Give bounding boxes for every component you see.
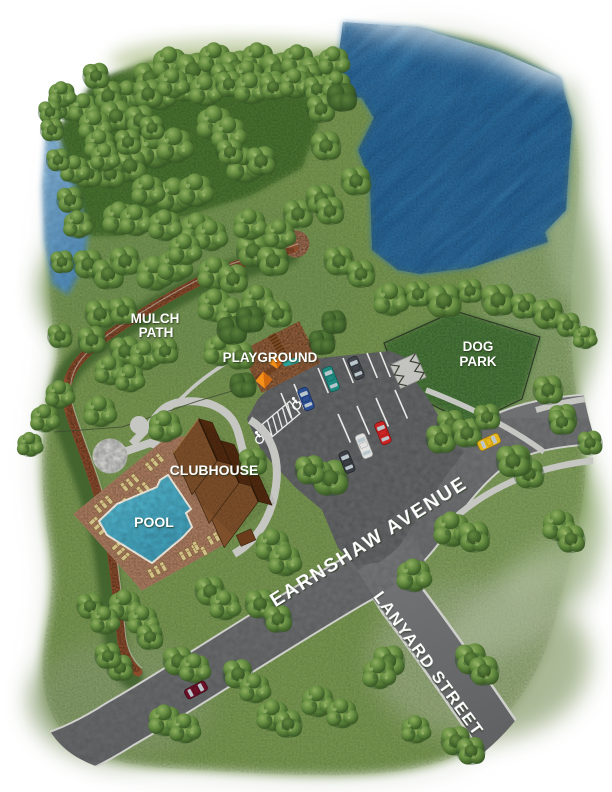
svg-text:MULCH: MULCH <box>131 311 180 326</box>
svg-text:POOL: POOL <box>134 514 174 530</box>
svg-text:PATH: PATH <box>139 325 174 340</box>
svg-text:CLUBHOUSE: CLUBHOUSE <box>170 462 259 478</box>
svg-text:DOG: DOG <box>463 339 494 354</box>
svg-text:PARK: PARK <box>459 354 497 369</box>
svg-text:PLAYGROUND: PLAYGROUND <box>223 350 318 365</box>
